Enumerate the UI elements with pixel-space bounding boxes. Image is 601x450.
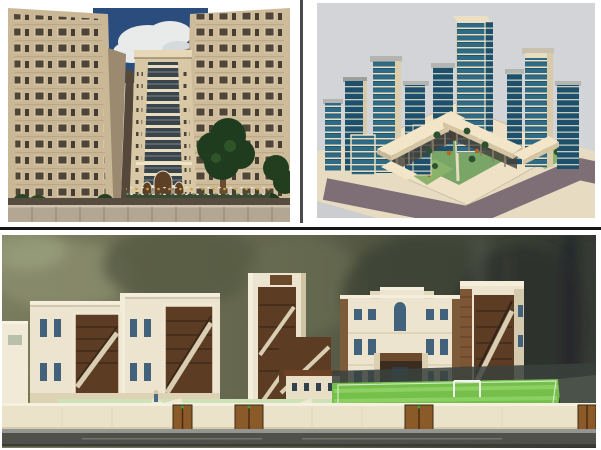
gate	[405, 405, 433, 431]
stair-bay	[74, 313, 120, 395]
campus-svg	[2, 235, 596, 448]
render-towers-worms-eye	[8, 8, 290, 222]
flower-strip	[126, 187, 270, 195]
collage-canvas	[0, 0, 601, 450]
city-svg	[317, 3, 595, 218]
far-left-wing	[2, 321, 28, 403]
fence	[8, 205, 290, 222]
stair-bay	[164, 305, 214, 399]
person	[154, 390, 158, 402]
towers-svg	[8, 8, 290, 222]
render-city-block-isometric	[317, 3, 595, 218]
boundary-wall	[2, 403, 596, 431]
gate	[235, 405, 263, 431]
gate	[173, 405, 192, 431]
render-campus-elevation	[2, 235, 596, 448]
fence-shadow	[8, 198, 290, 206]
vertical-rule	[300, 0, 303, 223]
horizontal-rule	[0, 227, 601, 230]
street-road	[2, 429, 596, 447]
gate	[578, 405, 596, 431]
left-wing-building	[30, 293, 220, 407]
